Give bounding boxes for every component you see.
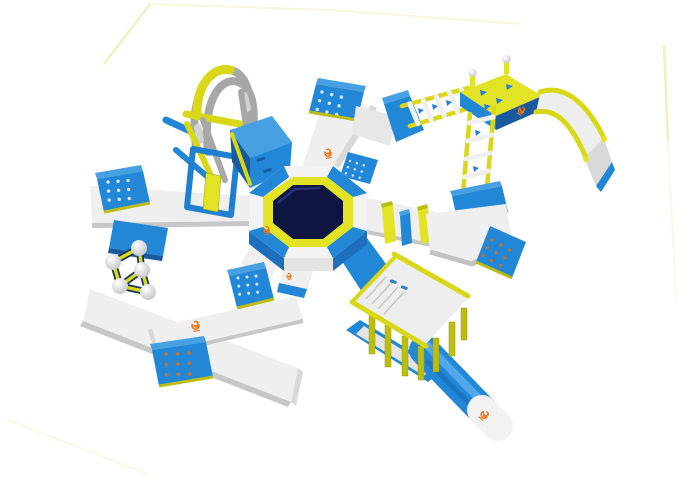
- landing-mat-southwest: [150, 336, 213, 386]
- product-image: [0, 0, 700, 482]
- stepping-sphere: [105, 254, 121, 270]
- central-water-trampoline: [249, 166, 367, 271]
- gate-pillar: [203, 173, 221, 212]
- slide-tower: [460, 55, 542, 130]
- northeast-ladder-bridge: [352, 88, 476, 146]
- water-slide: [536, 90, 615, 192]
- stepping-sphere: [131, 240, 147, 256]
- stepping-sphere: [134, 262, 150, 278]
- trampoline-mat: [273, 185, 343, 239]
- east-walkway: [367, 198, 436, 248]
- southwest-walkway-loop: [80, 289, 303, 407]
- east-landing-platform: [426, 204, 526, 278]
- stepping-sphere: [140, 284, 156, 300]
- landing-mat-west: [95, 165, 150, 212]
- water-park-render: [0, 0, 700, 482]
- stepping-sphere: [112, 278, 128, 294]
